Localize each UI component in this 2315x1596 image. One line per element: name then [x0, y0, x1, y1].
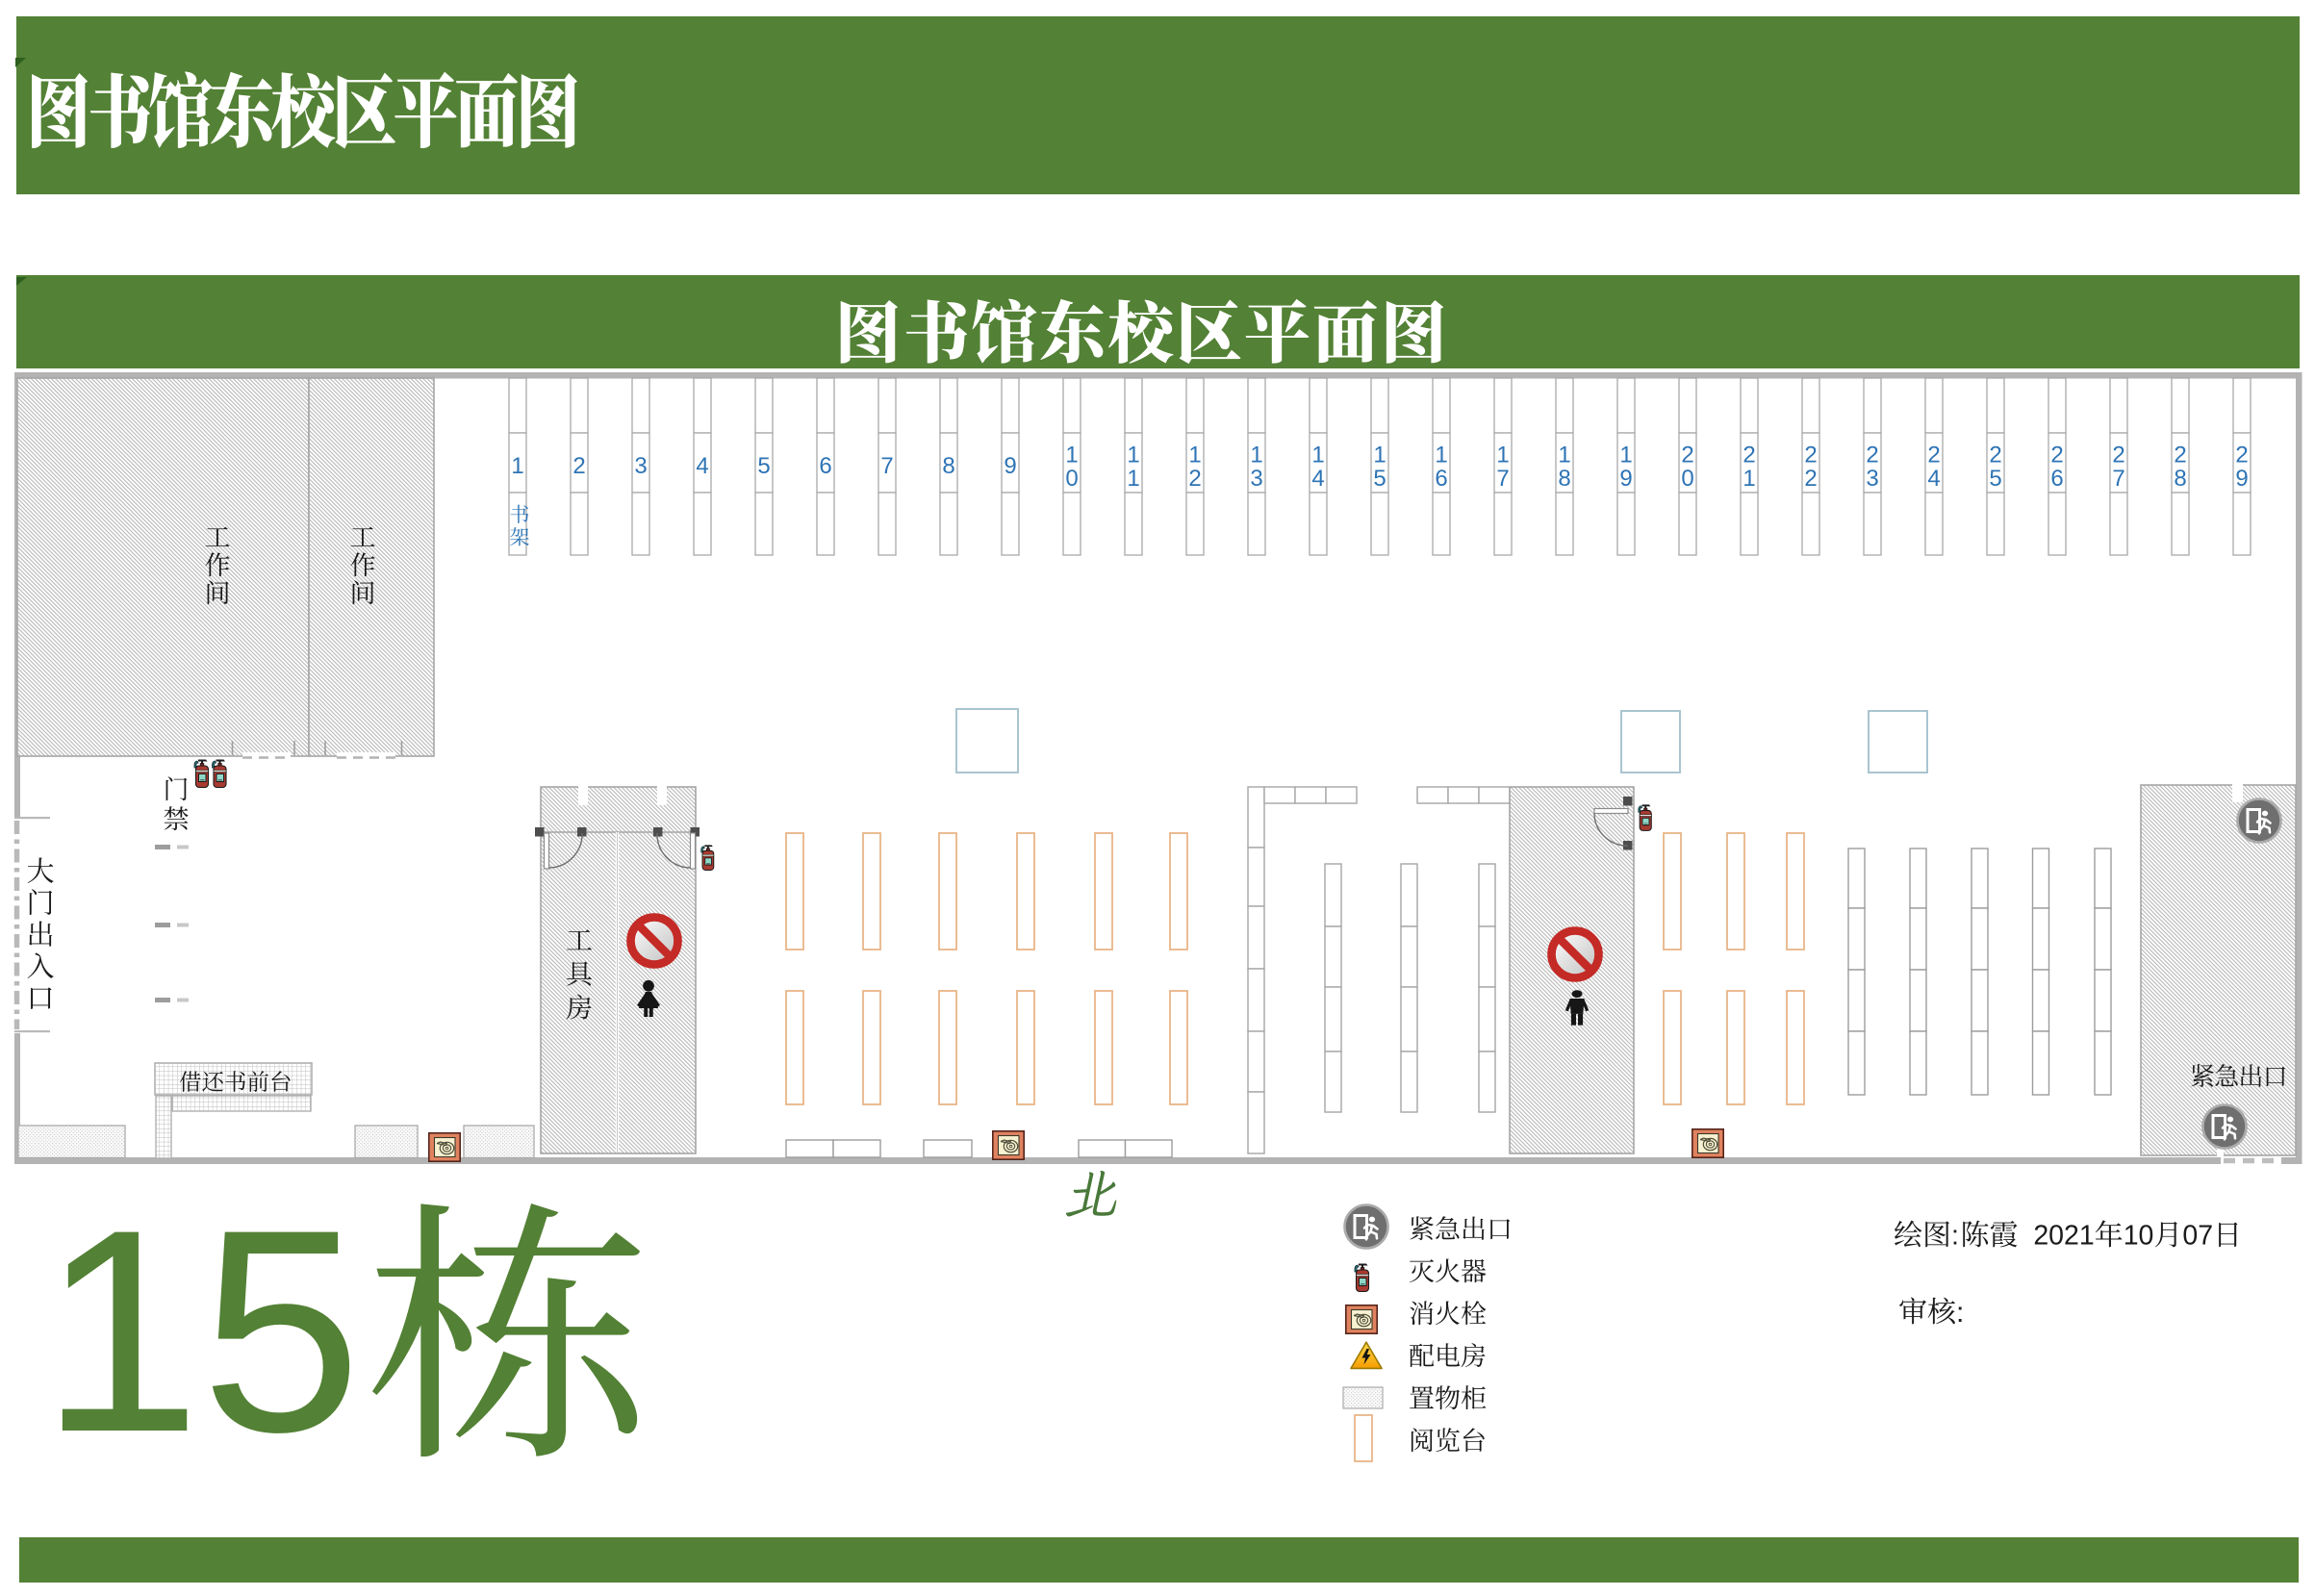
svg-text:4: 4 [1311, 466, 1324, 492]
svg-text:2: 2 [1743, 443, 1755, 469]
svg-text:2: 2 [1804, 466, 1817, 492]
svg-text:1: 1 [1558, 443, 1570, 469]
svg-text:4: 4 [696, 453, 708, 479]
svg-text:2: 2 [572, 453, 585, 479]
svg-text:1: 1 [1311, 443, 1324, 469]
svg-text:2021: 2021 [2019, 1221, 2095, 1252]
svg-text:1: 1 [1743, 466, 1755, 492]
svg-text:1: 1 [1496, 443, 1509, 469]
svg-text:1: 1 [1188, 443, 1201, 469]
svg-text:9: 9 [1619, 466, 1632, 492]
svg-text:1: 1 [1373, 443, 1386, 469]
svg-text:2: 2 [2112, 443, 2124, 469]
svg-text:1: 1 [1065, 443, 1078, 469]
svg-text:5: 5 [1373, 466, 1386, 492]
svg-text:0: 0 [1065, 466, 1078, 492]
svg-text:9: 9 [1004, 453, 1016, 479]
svg-text:2: 2 [1989, 443, 2001, 469]
svg-text:3: 3 [1250, 466, 1262, 492]
svg-text:8: 8 [2174, 466, 2186, 492]
svg-text:2: 2 [2050, 443, 2063, 469]
svg-text:4: 4 [1927, 466, 1940, 492]
svg-text:1: 1 [511, 453, 523, 479]
svg-text:2: 2 [1188, 466, 1201, 492]
svg-text:5: 5 [1989, 466, 2001, 492]
svg-text:3: 3 [1866, 466, 1878, 492]
svg-text:3: 3 [634, 453, 647, 479]
svg-text:8: 8 [942, 453, 954, 479]
svg-text:7: 7 [880, 453, 893, 479]
svg-text:5: 5 [757, 453, 770, 479]
svg-text:6: 6 [819, 453, 831, 479]
svg-text:2: 2 [1866, 443, 1878, 469]
svg-text:15: 15 [40, 1169, 362, 1492]
svg-text:2: 2 [1927, 443, 1940, 469]
svg-text:2: 2 [2235, 443, 2248, 469]
svg-text:6: 6 [1435, 466, 1447, 492]
svg-text:07: 07 [2182, 1221, 2213, 1252]
svg-text:7: 7 [2112, 466, 2124, 492]
svg-text:6: 6 [2050, 466, 2063, 492]
svg-text:2: 2 [1681, 443, 1693, 469]
svg-text:1: 1 [1127, 466, 1139, 492]
svg-text:1: 1 [1619, 443, 1632, 469]
svg-text:1: 1 [1250, 443, 1262, 469]
svg-text:9: 9 [2235, 466, 2248, 492]
svg-text:0: 0 [1681, 466, 1693, 492]
svg-text:1: 1 [1127, 443, 1139, 469]
svg-text:7: 7 [1496, 466, 1509, 492]
svg-text::: : [1956, 1297, 1964, 1329]
svg-text:2: 2 [1804, 443, 1817, 469]
svg-text::: : [1951, 1221, 1959, 1252]
svg-text:2: 2 [2174, 443, 2186, 469]
svg-text:1: 1 [1435, 443, 1447, 469]
svg-text:10: 10 [2124, 1221, 2154, 1252]
svg-text:8: 8 [1558, 466, 1570, 492]
